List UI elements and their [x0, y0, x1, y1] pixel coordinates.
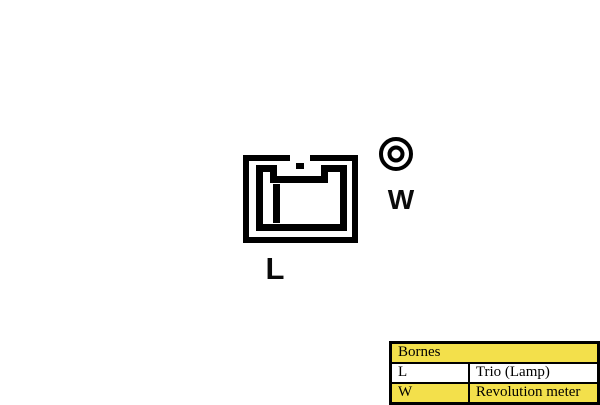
terminal-cell-l: L [391, 363, 469, 383]
connector-diagram [0, 0, 600, 400]
legend-header-row: Bornes [391, 343, 599, 364]
terminal-w-label: W [381, 186, 421, 214]
terminal-w-inner-ring-icon [390, 148, 403, 161]
terminal-l-pin-icon [273, 184, 280, 223]
terminal-cell-w: W [391, 383, 469, 404]
function-cell-w: Revolution meter [469, 383, 599, 404]
table-row: L Trio (Lamp) [391, 363, 599, 383]
function-cell-l: Trio (Lamp) [469, 363, 599, 383]
terminal-w-outer-ring-icon [381, 139, 411, 169]
legend-table: Bornes L Trio (Lamp) W Revolution meter [389, 341, 600, 405]
table-row: W Revolution meter [391, 383, 599, 404]
legend-table-title: Bornes [391, 343, 599, 364]
terminal-l-label: L [259, 253, 291, 284]
diagram-area: L W Bornes L Trio (Lamp) W Revolution me… [0, 0, 600, 400]
